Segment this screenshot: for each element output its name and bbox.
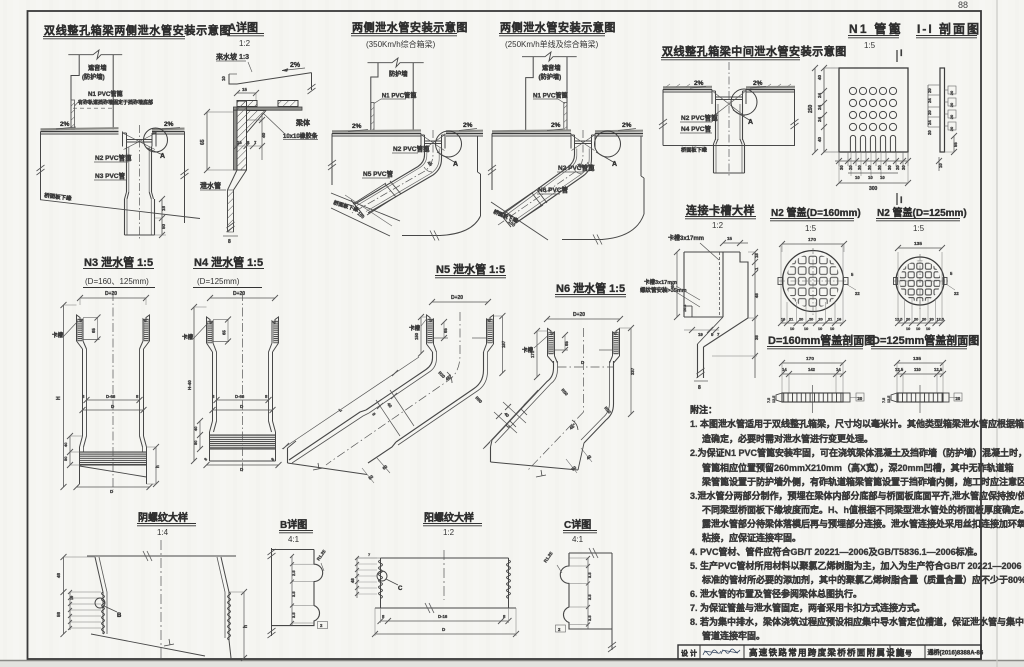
svg-text:连接卡槽大样: 连接卡槽大样 — [686, 203, 755, 217]
svg-text:N2 PVC管篦: N2 PVC管篦 — [393, 144, 430, 153]
svg-text:D-66: D-66 — [106, 394, 116, 399]
svg-text:10: 10 — [70, 596, 74, 600]
svg-text:16: 16 — [781, 318, 785, 322]
svg-text:1:5: 1:5 — [805, 224, 817, 233]
svg-text:19: 19 — [698, 332, 703, 337]
svg-text:(防护墙): (防护墙) — [539, 73, 562, 81]
svg-text:B详图: B详图 — [280, 518, 307, 531]
svg-text:22: 22 — [855, 291, 860, 296]
svg-text:1:5: 1:5 — [913, 224, 925, 233]
svg-text:3.5: 3.5 — [291, 612, 296, 618]
svg-text:泄水管: 泄水管 — [200, 181, 221, 190]
svg-text:N3 PVC管: N3 PVC管 — [95, 171, 125, 180]
svg-text:来水坡 1:3: 来水坡 1:3 — [215, 52, 249, 61]
svg-text:50: 50 — [161, 223, 166, 229]
svg-text:7.5: 7.5 — [882, 398, 886, 403]
svg-text:20: 20 — [809, 318, 813, 322]
svg-text:h: h — [155, 465, 160, 468]
svg-text:4:1: 4:1 — [288, 535, 300, 544]
svg-text:C: C — [398, 586, 403, 592]
svg-text:D=125mm管盖剖面图: D=125mm管盖剖面图 — [872, 333, 979, 347]
svg-text:38: 38 — [754, 335, 759, 340]
svg-text:h: h — [243, 625, 249, 628]
svg-text:150: 150 — [414, 332, 419, 340]
svg-text:N2 管盖(D=125mm): N2 管盖(D=125mm) — [877, 206, 967, 219]
svg-text:20: 20 — [914, 318, 918, 322]
svg-text:20: 20 — [927, 130, 932, 135]
svg-text:20: 20 — [799, 318, 803, 322]
svg-text:C详图: C详图 — [564, 518, 591, 531]
svg-text:21: 21 — [789, 318, 793, 322]
svg-text:D-66: D-66 — [235, 394, 245, 399]
svg-text:1:2: 1:2 — [443, 528, 455, 537]
svg-text:管道连接牢固。: 管道连接牢固。 — [702, 630, 765, 641]
svg-text:螺纹管安装>35mm: 螺纹管安装>35mm — [640, 286, 687, 294]
svg-text:10: 10 — [926, 327, 930, 331]
svg-text:40: 40 — [63, 442, 68, 447]
svg-text:图 号: 图 号 — [896, 649, 912, 658]
svg-text:30: 30 — [901, 165, 906, 170]
svg-text:65: 65 — [443, 328, 448, 333]
svg-text:58: 58 — [56, 611, 61, 617]
svg-text:1:5: 1:5 — [864, 41, 876, 50]
svg-text:N1 PVC管篦: N1 PVC管篦 — [382, 92, 418, 100]
svg-text:60: 60 — [670, 283, 675, 288]
svg-text:7. 为保证管盖与泄水管固定，两者采用卡扣方式连接方式。: 7. 为保证管盖与泄水管固定，两者采用卡扣方式连接方式。 — [690, 602, 925, 613]
svg-text:20: 20 — [949, 90, 954, 95]
svg-text:3.5: 3.5 — [291, 591, 296, 597]
svg-text:18: 18 — [754, 253, 759, 258]
svg-text:阳螺纹大样: 阳螺纹大样 — [424, 511, 474, 524]
svg-text:24: 24 — [817, 104, 822, 110]
svg-text:65: 65 — [200, 139, 206, 145]
svg-text:D+20: D+20 — [573, 312, 585, 318]
svg-text:50: 50 — [193, 440, 198, 445]
svg-text:10: 10 — [804, 327, 808, 331]
svg-text:15: 15 — [237, 140, 242, 145]
svg-text:1. 本图泄水管适用于双线整孔箱梁，尺寸均以毫米计。其他类型: 1. 本图泄水管适用于双线整孔箱梁，尺寸均以毫米计。其他类型箱梁泄水管应根据箱梁… — [690, 418, 1024, 429]
svg-text:24: 24 — [817, 92, 822, 98]
svg-text:12.5: 12.5 — [887, 396, 891, 403]
svg-text:2%: 2% — [352, 123, 362, 130]
svg-text:1:4: 1:4 — [157, 528, 169, 537]
svg-text:A: A — [160, 153, 165, 160]
svg-text:21: 21 — [828, 318, 832, 322]
svg-text:2%: 2% — [60, 121, 70, 128]
svg-text:不同梁型桥面板下缘坡度而定。H、h值根据不同梁型泄水管处的桥: 不同梁型桥面板下缘坡度而定。H、h值根据不同梁型泄水管处的桥面板厚度确定。外 — [702, 504, 1024, 515]
svg-text:3.5: 3.5 — [587, 572, 592, 578]
svg-text:55: 55 — [953, 142, 958, 147]
svg-text:14: 14 — [782, 367, 787, 372]
svg-text:20: 20 — [848, 165, 853, 170]
svg-text:两侧泄水管安装示意图: 两侧泄水管安装示意图 — [500, 20, 616, 34]
svg-text:10: 10 — [916, 327, 920, 331]
svg-text:I-I 剖面图: I-I 剖面图 — [917, 21, 981, 36]
svg-text:337: 337 — [630, 367, 635, 375]
svg-text:48: 48 — [56, 572, 61, 578]
svg-text:18: 18 — [161, 205, 166, 211]
svg-text:A详图: A详图 — [228, 20, 258, 34]
svg-text:卡槽: 卡槽 — [52, 331, 64, 339]
svg-text:6. 泄水管的布置及管径参阅梁体总图执行。: 6. 泄水管的布置及管径参阅梁体总图执行。 — [690, 588, 862, 599]
svg-text:3.5: 3.5 — [587, 594, 592, 600]
svg-text:有砟轨道挡砟墙固定于挡砟墙底部: 有砟轨道挡砟墙固定于挡砟墙底部 — [78, 99, 153, 106]
svg-text:N1 PVC管篦: N1 PVC管篦 — [533, 92, 569, 100]
svg-text:135: 135 — [914, 241, 922, 247]
svg-text:两侧泄水管安装示意图: 两侧泄水管安装示意图 — [352, 20, 468, 34]
svg-text:H: H — [56, 396, 62, 400]
svg-text:14: 14 — [836, 367, 841, 372]
svg-text:50: 50 — [63, 456, 68, 461]
svg-text:8. 若为集中排水，梁体浇筑过程应预设相应集中导水管定位槽道: 8. 若为集中排水，梁体浇筑过程应预设相应集中导水管定位槽道，保证泄水管与集中导… — [690, 616, 1024, 627]
svg-text:187: 187 — [501, 340, 506, 348]
svg-text:2.为保证N1 PVC管篦安装牢固，可在浇筑梁体混凝土及挡砟: 2.为保证N1 PVC管篦安装牢固，可在浇筑梁体混凝土及挡砟墙（防护墙）混凝土时… — [690, 447, 1024, 458]
svg-text:12.5: 12.5 — [934, 367, 943, 372]
svg-text:2%: 2% — [290, 62, 301, 69]
svg-text:3.泄水管分两部分制作，预埋在梁体内部分底部与桥面板底面平齐: 3.泄水管分两部分制作，预埋在梁体内部分底部与桥面板底面平齐,泄水管应保持按/依… — [690, 490, 1024, 501]
svg-text:1:2: 1:2 — [712, 221, 724, 230]
svg-text:D+20: D+20 — [233, 291, 245, 297]
svg-text:桥面板下缘: 桥面板下缘 — [681, 146, 708, 154]
svg-text:10: 10 — [906, 327, 910, 331]
svg-text:D+20: D+20 — [105, 291, 117, 297]
svg-text:N6 泄水管 1:5: N6 泄水管 1:5 — [556, 281, 625, 295]
svg-text:12.5: 12.5 — [895, 367, 904, 372]
svg-text:1:2: 1:2 — [239, 39, 251, 48]
svg-text:2%: 2% — [551, 122, 561, 129]
svg-text:8: 8 — [228, 239, 231, 245]
svg-text:40: 40 — [193, 426, 198, 431]
svg-text:卡槽: 卡槽 — [409, 324, 421, 332]
svg-text:12.5: 12.5 — [772, 396, 776, 403]
svg-text:20: 20 — [956, 396, 961, 401]
svg-text:卡槽3x17mm: 卡槽3x17mm — [668, 234, 704, 242]
svg-text:20: 20 — [922, 318, 926, 322]
svg-text:10: 10 — [790, 327, 794, 331]
svg-text:4:1: 4:1 — [572, 535, 584, 544]
svg-text:48: 48 — [754, 293, 759, 298]
svg-text:N6 PVC管: N6 PVC管 — [538, 185, 568, 194]
svg-text:8: 8 — [698, 385, 701, 391]
svg-text:B: B — [117, 613, 122, 619]
svg-text:管篦相应位置预留260mmX210mm（高X宽），深20mm: 管篦相应位置预留260mmX210mm（高X宽），深20mm凹槽，其中无砟轨道箱 — [702, 462, 1014, 473]
svg-text:250: 250 — [808, 104, 814, 113]
svg-text:N5 PVC管: N5 PVC管 — [363, 169, 393, 178]
svg-text:卡槽: 卡槽 — [182, 333, 194, 341]
svg-text:20: 20 — [949, 102, 954, 107]
svg-text:卡槽: 卡槽 — [522, 346, 534, 354]
svg-text:(D=125mm): (D=125mm) — [197, 277, 240, 286]
svg-text:20: 20 — [906, 318, 910, 322]
svg-text:N1 PVC管篦: N1 PVC管篦 — [88, 90, 124, 98]
svg-text:附注：: 附注： — [690, 404, 717, 415]
svg-text:20: 20 — [949, 126, 954, 131]
svg-text:露泄水管部分待梁体落模后再与预埋部分连接。泄水管连接处采用丝: 露泄水管部分待梁体落模后再与预埋部分连接。泄水管连接处采用丝扣连接加环氧树脂 — [702, 518, 1024, 529]
svg-text:2%: 2% — [622, 122, 632, 129]
svg-text:N2 PVC管篦: N2 PVC管篦 — [95, 153, 132, 162]
svg-text:造确定，必要时需对泄水管进行变更处理。: 造确定，必要时需对泄水管进行变更处理。 — [702, 433, 873, 444]
svg-text:A: A — [612, 161, 617, 168]
svg-text:通桥(2016)8388A-86: 通桥(2016)8388A-86 — [928, 649, 984, 657]
svg-text:D+20: D+20 — [451, 295, 463, 301]
svg-text:N2 管盖(D=160mm): N2 管盖(D=160mm) — [771, 206, 861, 219]
svg-text:16: 16 — [837, 318, 841, 322]
svg-text:170: 170 — [808, 237, 816, 243]
svg-text:2%: 2% — [463, 122, 473, 129]
svg-text:N4 泄水管 1:5: N4 泄水管 1:5 — [194, 255, 263, 269]
svg-text:20: 20 — [819, 318, 823, 322]
svg-text:20: 20 — [949, 114, 954, 119]
svg-text:N4 PVC管: N4 PVC管 — [681, 124, 711, 133]
svg-text:110: 110 — [914, 367, 921, 372]
svg-text:(D=160、125mm): (D=160、125mm) — [85, 277, 149, 286]
svg-text:双线整孔箱梁两侧泄水管安装示意图: 双线整孔箱梁两侧泄水管安装示意图 — [44, 23, 231, 37]
svg-text:4. PVC管材、管件应符合GB/T 20221—2006及: 4. PVC管材、管件应符合GB/T 20221—2006及GB/T5836.1… — [690, 546, 983, 557]
svg-text:20: 20 — [858, 396, 863, 401]
svg-text:40: 40 — [817, 136, 822, 142]
svg-text:10: 10 — [221, 76, 226, 81]
svg-text:135: 135 — [913, 356, 921, 362]
svg-text:2%: 2% — [164, 121, 174, 128]
svg-text:阴螺纹大样: 阴螺纹大样 — [138, 511, 188, 524]
svg-text:10: 10 — [938, 163, 943, 168]
svg-text:88: 88 — [958, 0, 968, 10]
svg-text:粘接，应保证连接牢固。: 粘接，应保证连接牢固。 — [701, 532, 801, 543]
svg-text:A: A — [453, 161, 458, 168]
svg-text:40: 40 — [261, 132, 267, 138]
svg-text:3.5: 3.5 — [587, 615, 592, 621]
svg-text:高速铁路常用跨度梁桥桥面附属设施: 高速铁路常用跨度梁桥桥面附属设施 — [749, 648, 906, 658]
svg-text:20: 20 — [895, 165, 900, 170]
svg-text:梁管篦设置于防护墙外侧，有砟轨道箱梁管篦设置于挡砟墙内侧，施: 梁管篦设置于防护墙外侧，有砟轨道箱梁管篦设置于挡砟墙内侧，施工时应注意区分。 — [701, 476, 1024, 487]
svg-text:65: 65 — [222, 330, 227, 335]
svg-text:10: 10 — [880, 175, 885, 180]
svg-text:48: 48 — [350, 578, 355, 583]
svg-text:(防护墙): (防护墙) — [82, 73, 105, 81]
svg-text:D=160mm管盖剖面图: D=160mm管盖剖面图 — [768, 333, 875, 347]
svg-text:D-16: D-16 — [438, 614, 448, 619]
svg-text:I: I — [900, 48, 903, 58]
svg-text:10: 10 — [830, 327, 834, 331]
svg-text:24: 24 — [817, 116, 822, 122]
svg-text:双线整孔箱梁中间泄水管安装示意图: 双线整孔箱梁中间泄水管安装示意图 — [662, 44, 847, 58]
svg-text:2.5: 2.5 — [291, 570, 296, 576]
svg-text:10.3: 10.3 — [683, 305, 687, 312]
svg-text:65: 65 — [91, 328, 96, 333]
svg-text:N5 泄水管 1:5: N5 泄水管 1:5 — [436, 262, 505, 276]
svg-text:10: 10 — [868, 175, 873, 180]
svg-text:(250Km/h单线及综合箱梁): (250Km/h单线及综合箱梁) — [505, 39, 599, 49]
svg-text:梁体: 梁体 — [295, 118, 311, 127]
svg-text:5. 生产PVC管材所用材料以聚氯乙烯树脂为主，加入为生产符: 5. 生产PVC管材所用材料以聚氯乙烯树脂为主，加入为生产符合GB/T 2022… — [690, 560, 1022, 571]
svg-text:A: A — [748, 119, 753, 126]
svg-text:(350Km/h综合箱梁): (350Km/h综合箱梁) — [366, 39, 436, 49]
svg-text:65: 65 — [564, 341, 569, 346]
svg-text:170: 170 — [806, 356, 814, 362]
svg-text:30: 30 — [887, 165, 892, 170]
svg-text:30: 30 — [839, 165, 844, 170]
svg-text:10: 10 — [818, 327, 822, 331]
svg-text:142: 142 — [808, 367, 816, 372]
svg-text:15: 15 — [242, 87, 248, 92]
svg-text:22: 22 — [954, 291, 959, 296]
svg-text:15: 15 — [727, 236, 733, 241]
svg-text:设 计: 设 计 — [681, 649, 697, 658]
svg-text:2%: 2% — [753, 80, 763, 87]
svg-text:7.5: 7.5 — [767, 398, 771, 403]
svg-text:12.5: 12.5 — [895, 318, 902, 322]
svg-text:遮音墙: 遮音墙 — [88, 64, 107, 72]
svg-text:20: 20 — [930, 318, 934, 322]
svg-text:300: 300 — [869, 186, 878, 192]
svg-text:I: I — [900, 195, 903, 205]
svg-text:12.5: 12.5 — [937, 318, 944, 322]
svg-text:10: 10 — [855, 175, 860, 180]
svg-text:2%: 2% — [694, 80, 704, 87]
svg-text:H-40: H-40 — [187, 380, 192, 390]
svg-text:标准的管材所必要的添加剂，其中的聚氯乙烯树脂含量（质量含量）: 标准的管材所必要的添加剂，其中的聚氯乙烯树脂含量（质量含量）应不少于80%。 — [701, 574, 1024, 585]
svg-text:N3 泄水管 1:5: N3 泄水管 1:5 — [84, 255, 153, 269]
svg-text:防护墙: 防护墙 — [389, 70, 408, 78]
svg-text:10x10橡胶条: 10x10橡胶条 — [283, 132, 319, 140]
svg-text:遮音墙: 遮音墙 — [542, 64, 561, 72]
svg-text:N1 管篦: N1 管篦 — [849, 21, 903, 36]
svg-text:40: 40 — [817, 74, 822, 80]
